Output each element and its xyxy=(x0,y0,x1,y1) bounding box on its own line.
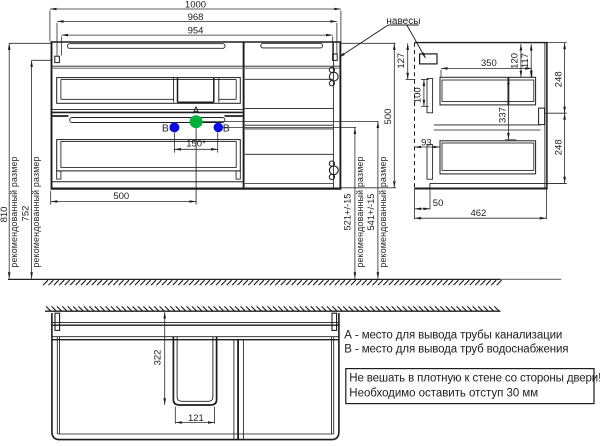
svg-text:500: 500 xyxy=(113,191,129,202)
svg-text:248: 248 xyxy=(553,71,564,87)
svg-text:50: 50 xyxy=(433,198,444,209)
svg-text:954: 954 xyxy=(188,26,204,37)
svg-text:рекомендованный размер: рекомендованный размер xyxy=(31,156,41,267)
svg-text:968: 968 xyxy=(188,12,204,23)
svg-text:521+/-15: 521+/-15 xyxy=(342,194,352,231)
svg-text:541+/-15: 541+/-15 xyxy=(366,194,376,231)
svg-text:В: В xyxy=(223,122,230,134)
svg-text:100: 100 xyxy=(412,87,423,103)
svg-text:В - место для вывода труб водо: В - место для вывода труб водоснабжения xyxy=(344,343,568,355)
svg-text:350: 350 xyxy=(481,58,497,69)
svg-text:337: 337 xyxy=(497,107,508,123)
svg-text:462: 462 xyxy=(470,208,486,219)
svg-text:150*: 150* xyxy=(186,139,206,150)
svg-text:Не вешать в плотную к стене со: Не вешать в плотную к стене со стороны д… xyxy=(349,373,600,385)
svg-text:Необходимо оставить отступ 30: Необходимо оставить отступ 30 мм xyxy=(349,387,538,399)
svg-text:рекомендованный размер: рекомендованный размер xyxy=(9,156,19,267)
svg-text:322: 322 xyxy=(153,350,164,366)
svg-text:93: 93 xyxy=(421,137,432,148)
svg-text:1000: 1000 xyxy=(185,0,206,10)
svg-text:рекомендованный размер: рекомендованный размер xyxy=(378,156,388,267)
svg-text:127: 127 xyxy=(396,53,407,69)
svg-text:А: А xyxy=(193,106,200,117)
svg-text:752: 752 xyxy=(21,206,32,222)
svg-text:121: 121 xyxy=(188,413,204,424)
svg-text:248: 248 xyxy=(553,139,564,155)
svg-text:500: 500 xyxy=(383,109,394,125)
svg-text:117: 117 xyxy=(520,53,531,68)
svg-text:В: В xyxy=(162,122,169,134)
svg-text:120: 120 xyxy=(510,53,521,69)
svg-text:рекомендованный размер: рекомендованный размер xyxy=(355,156,365,267)
svg-text:А - место для вывода трубы кан: А - место для вывода трубы канализации xyxy=(344,329,562,341)
